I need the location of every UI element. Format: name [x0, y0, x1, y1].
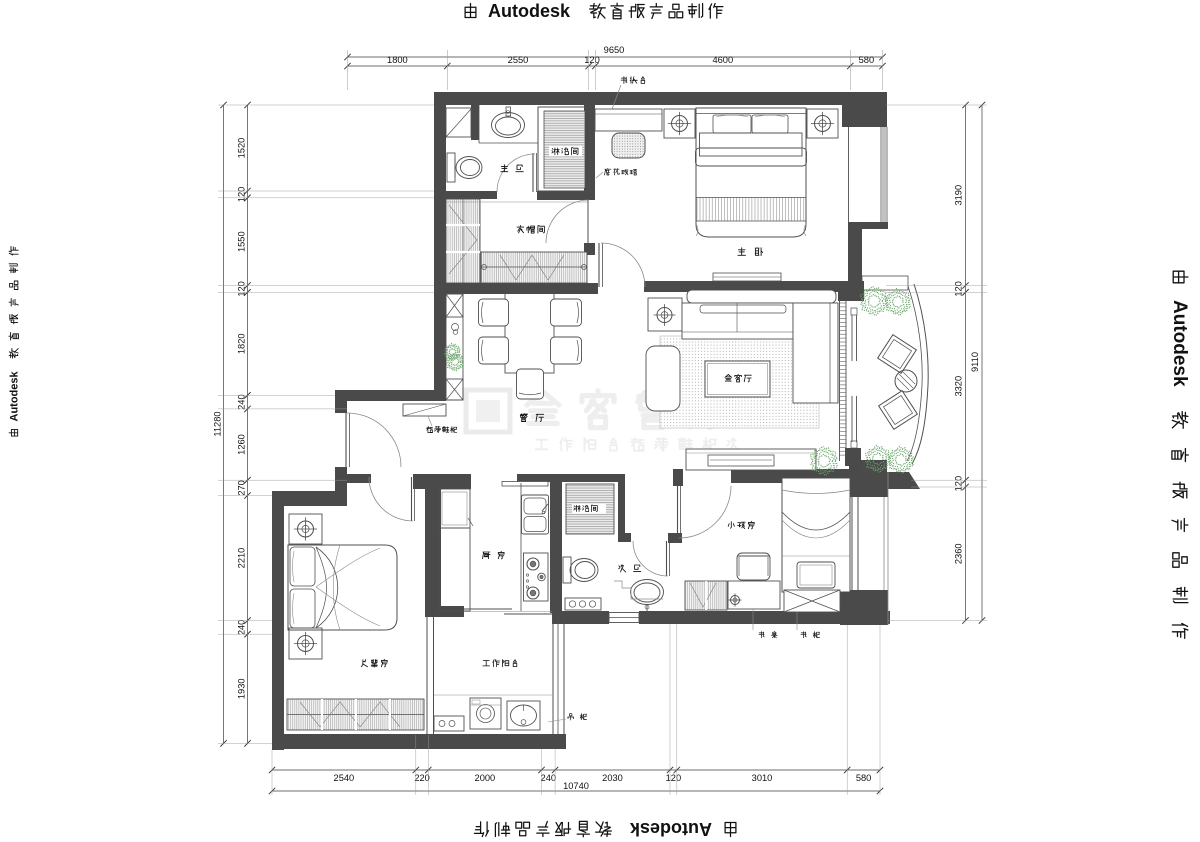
svg-text:2030: 2030	[602, 773, 623, 783]
svg-text:2360: 2360	[954, 543, 964, 564]
svg-text:3010: 3010	[752, 773, 773, 783]
svg-text:Autodesk: Autodesk	[488, 1, 571, 21]
svg-text:2540: 2540	[334, 773, 355, 783]
svg-text:Autodesk: Autodesk	[629, 819, 712, 839]
svg-text:120: 120	[237, 281, 247, 297]
svg-text:3320: 3320	[954, 376, 964, 397]
svg-text:240: 240	[237, 394, 247, 410]
svg-text:120: 120	[954, 281, 964, 297]
svg-text:580: 580	[859, 55, 875, 65]
svg-text:1260: 1260	[237, 434, 247, 455]
svg-text:4600: 4600	[712, 55, 733, 65]
svg-text:Autodesk: Autodesk	[1169, 300, 1190, 387]
svg-text:120: 120	[666, 773, 682, 783]
svg-text:1820: 1820	[237, 333, 247, 354]
svg-text:270: 270	[237, 480, 247, 496]
svg-text:9650: 9650	[604, 45, 625, 55]
svg-text:240: 240	[237, 620, 247, 636]
svg-text:Autodesk: Autodesk	[9, 371, 21, 422]
svg-text:2550: 2550	[508, 55, 529, 65]
svg-text:2000: 2000	[475, 773, 496, 783]
svg-text:220: 220	[414, 773, 430, 783]
svg-text:1930: 1930	[237, 678, 247, 699]
svg-text:1550: 1550	[237, 231, 247, 252]
svg-text:580: 580	[856, 773, 872, 783]
svg-text:2210: 2210	[237, 548, 247, 569]
svg-text:11280: 11280	[213, 411, 223, 436]
svg-text:120: 120	[237, 187, 247, 203]
svg-text:120: 120	[584, 55, 600, 65]
svg-text:9110: 9110	[970, 352, 980, 372]
svg-text:3190: 3190	[954, 185, 964, 206]
svg-text:1520: 1520	[237, 138, 247, 159]
svg-text:120: 120	[954, 476, 964, 492]
svg-text:240: 240	[541, 773, 557, 783]
svg-text:1800: 1800	[387, 55, 408, 65]
svg-text:10740: 10740	[563, 781, 589, 791]
